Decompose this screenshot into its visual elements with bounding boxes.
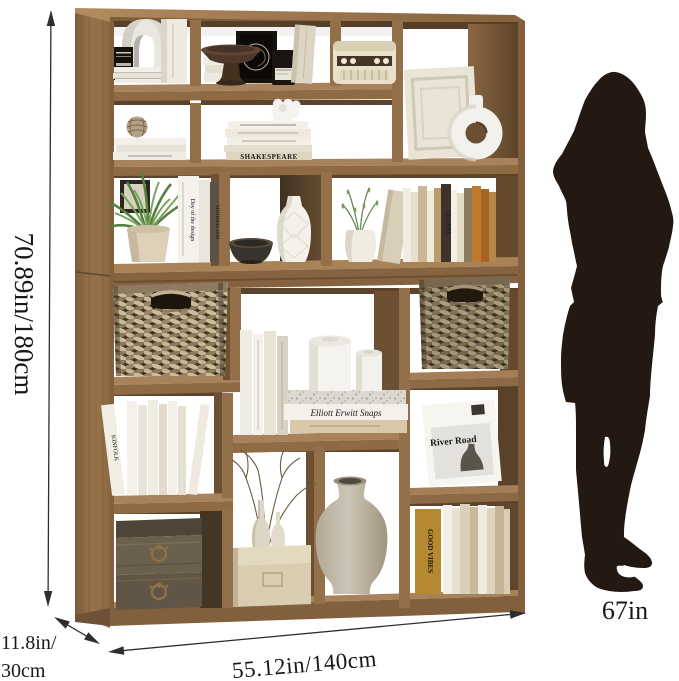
svg-text:11.8in/: 11.8in/ xyxy=(1,632,57,654)
svg-text:GOOD VIBES: GOOD VIBES xyxy=(426,529,434,573)
svg-text:70.89in/180cm: 70.89in/180cm xyxy=(9,233,39,396)
svg-text:67in: 67in xyxy=(602,596,648,625)
svg-text:Elliott Erwitt Snaps: Elliott Erwitt Snaps xyxy=(309,408,382,418)
svg-text:SHAKESPEARE: SHAKESPEARE xyxy=(240,153,298,161)
svg-text:CHANEL: CHANEL xyxy=(445,211,451,236)
svg-text:MINIMALISM: MINIMALISM xyxy=(214,205,220,240)
svg-text:Day of the design: Day of the design xyxy=(189,199,196,242)
svg-text:30cm: 30cm xyxy=(1,660,46,681)
